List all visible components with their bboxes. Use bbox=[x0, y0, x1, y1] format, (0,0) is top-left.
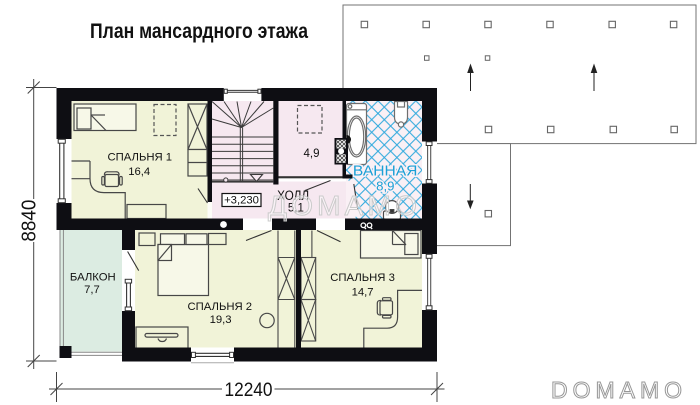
svg-text:ВАННАЯ: ВАННАЯ bbox=[353, 162, 418, 179]
svg-text:4,9: 4,9 bbox=[304, 148, 320, 160]
svg-text:16,4: 16,4 bbox=[128, 166, 150, 178]
svg-text:19,3: 19,3 bbox=[210, 314, 232, 326]
svg-text:ДОМАМО: ДОМАМО bbox=[268, 190, 421, 221]
svg-text:СПАЛЬНЯ 2: СПАЛЬНЯ 2 bbox=[187, 301, 252, 313]
svg-text:СПАЛЬНЯ 1: СПАЛЬНЯ 1 bbox=[107, 151, 172, 163]
svg-text:14,7: 14,7 bbox=[352, 287, 374, 299]
svg-text:8840: 8840 bbox=[19, 200, 41, 242]
svg-text:СПАЛЬНЯ 3: СПАЛЬНЯ 3 bbox=[330, 272, 395, 284]
svg-text:+3,230: +3,230 bbox=[224, 195, 259, 207]
svg-text:12240: 12240 bbox=[225, 379, 273, 401]
svg-text:БАЛКОН: БАЛКОН bbox=[70, 271, 116, 283]
svg-text:План мансардного этажа: План мансардного этажа bbox=[90, 20, 308, 43]
svg-text:7,7: 7,7 bbox=[84, 284, 100, 296]
svg-text:DOMAMO: DOMAMO bbox=[551, 377, 687, 403]
